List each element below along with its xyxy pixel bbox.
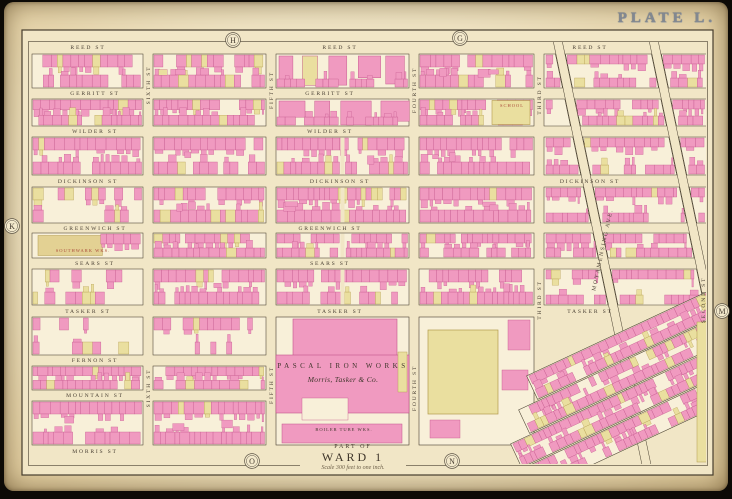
building xyxy=(642,188,651,197)
building xyxy=(248,162,256,174)
building xyxy=(364,210,373,222)
building xyxy=(654,234,659,243)
building-rear-ell xyxy=(357,200,359,205)
building xyxy=(323,79,328,87)
building xyxy=(502,370,528,390)
building-rear-ell xyxy=(236,67,243,72)
building xyxy=(222,420,233,428)
building-rear-ell xyxy=(601,147,607,151)
building-rear-ell xyxy=(384,114,391,117)
building xyxy=(172,248,179,257)
building xyxy=(230,380,240,389)
building-rear-ell xyxy=(262,377,264,380)
building xyxy=(497,188,506,200)
building xyxy=(196,270,204,282)
building xyxy=(160,210,170,222)
building xyxy=(118,367,124,376)
building xyxy=(190,138,200,150)
building xyxy=(166,367,175,376)
building-rear-ell xyxy=(316,242,318,248)
building xyxy=(191,292,199,304)
building xyxy=(488,70,498,74)
building xyxy=(387,138,394,150)
building-rear-ell xyxy=(221,70,223,75)
building xyxy=(169,234,175,243)
building-rear-ell xyxy=(119,67,123,75)
building-rear-ell xyxy=(346,155,349,162)
building-rear-ell xyxy=(613,279,618,282)
building xyxy=(227,342,232,354)
building xyxy=(97,402,104,414)
building-rear-ell xyxy=(184,330,192,334)
building-rear-ell xyxy=(506,71,509,75)
building-rear-ell xyxy=(166,429,173,432)
building xyxy=(65,138,75,150)
building xyxy=(201,69,209,75)
building xyxy=(508,320,530,350)
building-rear-ell xyxy=(500,282,504,288)
building xyxy=(185,234,195,243)
building xyxy=(88,138,96,150)
building xyxy=(353,270,362,282)
building xyxy=(429,100,435,110)
building-rear-ell xyxy=(679,74,686,78)
building xyxy=(470,292,478,304)
building-rear-ell xyxy=(658,197,663,204)
building xyxy=(154,380,163,389)
building xyxy=(453,248,461,257)
building xyxy=(311,138,319,150)
street-label: DICKINSON ST xyxy=(58,179,118,185)
building xyxy=(293,292,303,304)
building xyxy=(678,116,687,125)
building xyxy=(61,100,71,110)
building-rear-ell xyxy=(76,150,79,157)
building xyxy=(277,117,285,125)
building xyxy=(208,138,215,150)
building xyxy=(512,270,522,282)
building xyxy=(48,432,54,444)
building xyxy=(154,115,162,125)
building-rear-ell xyxy=(200,289,206,292)
building xyxy=(212,380,220,389)
plate-reference-letter: H xyxy=(226,33,241,48)
building-rear-ell xyxy=(244,200,250,203)
building xyxy=(135,100,141,110)
building-rear-ell xyxy=(262,414,264,422)
building xyxy=(216,292,223,304)
building-rear-ell xyxy=(312,150,317,157)
building xyxy=(112,115,118,125)
building xyxy=(361,79,366,87)
building xyxy=(212,367,218,376)
building xyxy=(110,432,119,444)
building-rear-ell xyxy=(41,414,49,418)
building-rear-ell xyxy=(633,197,635,205)
building xyxy=(154,55,163,67)
building xyxy=(195,234,205,243)
building xyxy=(134,188,141,200)
building xyxy=(33,210,43,222)
works-shed xyxy=(398,352,407,392)
building-rear-ell xyxy=(509,203,516,210)
building-rear-ell xyxy=(115,244,123,251)
landmark-label: SCHOOL xyxy=(500,103,524,108)
building xyxy=(184,402,194,414)
building xyxy=(214,234,220,243)
building xyxy=(58,162,63,174)
building xyxy=(647,100,652,109)
building xyxy=(33,162,41,174)
building xyxy=(648,116,653,125)
building-rear-ell xyxy=(530,110,532,116)
scale-note: Scale 300 feet to one inch. xyxy=(295,465,411,471)
building xyxy=(383,117,393,125)
building xyxy=(106,234,113,244)
building xyxy=(314,117,324,125)
building xyxy=(314,188,319,200)
building xyxy=(546,270,551,279)
building-rear-ell xyxy=(249,155,255,162)
building xyxy=(196,188,206,200)
building-rear-ell xyxy=(359,150,361,154)
building-rear-ell xyxy=(510,482,520,492)
building xyxy=(190,432,195,444)
building xyxy=(75,138,80,150)
building-rear-ell xyxy=(697,161,703,165)
building-rear-ell xyxy=(46,282,48,286)
building-rear-ell xyxy=(102,244,105,247)
building xyxy=(330,188,338,200)
building xyxy=(430,420,460,438)
plate-reference-letter: O xyxy=(245,454,260,469)
building xyxy=(277,162,284,174)
building xyxy=(48,75,54,87)
building xyxy=(45,292,55,304)
building xyxy=(136,162,142,174)
building-rear-ell xyxy=(480,109,482,115)
building-rear-ell xyxy=(713,329,718,336)
building xyxy=(691,270,694,279)
building xyxy=(72,342,82,354)
building-rear-ell xyxy=(547,243,555,248)
building xyxy=(219,115,227,125)
building xyxy=(441,292,448,304)
building-rear-ell xyxy=(527,70,531,75)
building xyxy=(176,380,186,389)
building xyxy=(333,162,340,174)
building xyxy=(695,138,704,147)
building-rear-ell xyxy=(155,284,157,292)
building-rear-ell xyxy=(598,113,601,116)
building xyxy=(688,78,698,87)
building xyxy=(220,380,230,389)
building xyxy=(355,210,363,222)
building xyxy=(43,432,48,444)
building-rear-ell xyxy=(478,287,483,292)
building-rear-ell xyxy=(445,244,452,248)
building-rear-ell xyxy=(347,112,351,117)
building xyxy=(58,188,65,200)
building xyxy=(387,210,394,222)
building xyxy=(138,115,141,125)
building-rear-ell xyxy=(239,414,245,420)
building xyxy=(582,116,588,125)
building xyxy=(187,100,192,110)
building xyxy=(682,55,691,64)
building xyxy=(188,202,195,209)
building xyxy=(645,138,651,147)
building xyxy=(526,210,531,222)
building xyxy=(234,115,240,125)
building xyxy=(515,162,522,174)
building xyxy=(645,165,654,174)
building xyxy=(499,234,508,243)
building xyxy=(519,484,532,496)
building-rear-ell xyxy=(84,330,86,333)
building xyxy=(429,270,436,282)
building xyxy=(506,162,515,174)
building xyxy=(329,270,335,282)
building xyxy=(163,318,171,330)
building-rear-ell xyxy=(595,72,598,78)
building xyxy=(324,234,333,243)
building xyxy=(163,402,171,414)
building xyxy=(359,292,368,304)
building-rear-ell xyxy=(111,427,118,432)
building xyxy=(321,270,328,282)
building xyxy=(395,248,404,257)
building xyxy=(357,248,362,257)
building xyxy=(426,292,433,304)
street-label: FERNON ST xyxy=(72,358,119,364)
building-rear-ell xyxy=(125,244,129,250)
building xyxy=(448,292,458,304)
building xyxy=(679,295,684,304)
building xyxy=(162,115,169,125)
building xyxy=(404,248,407,257)
building-rear-ell xyxy=(516,243,523,247)
building xyxy=(178,402,184,414)
building xyxy=(101,234,107,244)
building xyxy=(96,138,106,150)
building-rear-ell xyxy=(375,112,377,117)
building-rear-ell xyxy=(167,376,174,380)
building xyxy=(585,213,588,222)
building-rear-ell xyxy=(635,205,642,213)
building-rear-ell xyxy=(197,282,202,287)
building xyxy=(97,380,103,389)
building xyxy=(593,165,601,174)
building xyxy=(388,270,398,282)
building-rear-ell xyxy=(160,289,164,292)
building xyxy=(245,248,254,257)
building-rear-ell xyxy=(119,376,122,381)
building xyxy=(479,162,484,174)
building-rear-ell xyxy=(207,204,210,210)
building xyxy=(663,55,672,64)
building xyxy=(75,292,82,304)
building xyxy=(100,162,105,174)
landmark-label: SOUTHWARK WKS. xyxy=(56,248,110,253)
building-rear-ell xyxy=(638,64,646,71)
building-rear-ell xyxy=(71,68,76,75)
building xyxy=(85,432,95,444)
building-rear-ell xyxy=(155,414,161,420)
building xyxy=(125,138,131,150)
building-rear-ell xyxy=(527,240,529,248)
building-rear-ell xyxy=(596,197,604,200)
building-rear-ell xyxy=(105,414,110,421)
building xyxy=(440,138,446,150)
street-label: DICKINSON ST xyxy=(310,179,370,185)
building xyxy=(207,55,213,67)
building xyxy=(258,188,264,200)
building xyxy=(134,402,141,414)
building-rear-ell xyxy=(194,330,198,333)
reference-letter: K xyxy=(9,222,15,231)
building xyxy=(220,210,225,222)
building-rear-ell xyxy=(188,242,192,248)
building xyxy=(169,115,179,125)
building xyxy=(469,248,479,257)
building xyxy=(171,402,178,414)
building xyxy=(318,138,326,150)
building xyxy=(444,210,450,222)
building xyxy=(63,55,71,67)
building xyxy=(535,477,547,489)
building xyxy=(426,234,435,243)
building-rear-ell xyxy=(399,282,405,286)
building xyxy=(121,162,129,174)
building xyxy=(194,380,203,389)
building xyxy=(461,248,469,257)
building xyxy=(111,162,121,174)
building-rear-ell xyxy=(64,67,69,71)
building xyxy=(434,292,442,304)
building-rear-ell xyxy=(112,155,119,162)
building xyxy=(95,292,104,304)
building-rear-ell xyxy=(34,110,39,117)
building xyxy=(637,188,643,197)
building xyxy=(697,78,702,87)
building xyxy=(154,138,164,150)
building-rear-ell xyxy=(86,200,90,205)
building xyxy=(546,138,554,147)
building-rear-ell xyxy=(427,69,434,75)
building-rear-ell xyxy=(380,282,386,290)
building-rear-ell xyxy=(304,286,308,292)
building xyxy=(516,188,521,200)
building xyxy=(487,248,492,257)
street-label: MOUNTAIN ST xyxy=(66,393,124,399)
building-rear-ell xyxy=(121,206,127,210)
building xyxy=(506,270,512,282)
building xyxy=(130,234,140,244)
building xyxy=(296,162,301,174)
building xyxy=(193,318,199,330)
building xyxy=(299,248,306,257)
building xyxy=(115,270,122,282)
building-rear-ell xyxy=(292,242,297,248)
building xyxy=(420,138,427,150)
building xyxy=(308,270,314,282)
building xyxy=(447,138,457,150)
building-rear-ell xyxy=(80,67,83,72)
building xyxy=(593,248,596,257)
building xyxy=(183,318,193,330)
building-rear-ell xyxy=(132,377,138,380)
building xyxy=(154,100,160,110)
building-rear-ell xyxy=(692,64,697,71)
building xyxy=(251,432,260,444)
building xyxy=(395,138,405,150)
building-rear-ell xyxy=(328,287,334,292)
building-rear-ell xyxy=(261,427,263,432)
building xyxy=(507,234,515,243)
building xyxy=(69,115,78,125)
building xyxy=(623,78,629,87)
building xyxy=(291,248,299,257)
building xyxy=(211,210,220,222)
building xyxy=(161,270,168,282)
building xyxy=(192,55,202,67)
building-rear-ell xyxy=(578,197,580,204)
building xyxy=(468,270,475,282)
building xyxy=(508,210,518,222)
building xyxy=(246,432,251,444)
building xyxy=(258,210,263,222)
plate-reference-letter: G xyxy=(453,31,468,46)
building xyxy=(653,100,659,109)
building xyxy=(482,234,487,243)
building xyxy=(466,115,472,125)
building xyxy=(346,248,351,257)
building-rear-ell xyxy=(186,286,189,292)
building-rear-ell xyxy=(185,414,192,420)
building xyxy=(154,402,163,414)
building xyxy=(215,138,225,150)
building xyxy=(60,75,69,87)
building xyxy=(185,152,191,158)
building xyxy=(691,188,699,197)
building xyxy=(657,270,666,279)
building xyxy=(277,79,284,87)
building xyxy=(351,248,357,257)
building xyxy=(103,380,110,389)
building-rear-ell xyxy=(438,158,441,162)
building xyxy=(582,270,588,279)
building xyxy=(430,55,436,67)
building xyxy=(392,292,398,304)
building-rear-ell xyxy=(396,150,403,157)
building xyxy=(52,115,61,125)
building-rear-ell xyxy=(493,288,495,292)
mid-block-alley xyxy=(341,270,345,305)
building xyxy=(684,234,687,243)
building xyxy=(643,116,648,125)
building xyxy=(368,292,375,304)
building-rear-ell xyxy=(231,376,239,381)
building xyxy=(394,162,404,174)
building xyxy=(420,115,427,125)
building xyxy=(564,138,571,147)
building-rear-ell xyxy=(471,285,476,292)
building xyxy=(62,115,69,125)
building xyxy=(681,138,686,147)
building-rear-ell xyxy=(554,159,558,165)
building xyxy=(510,138,517,150)
